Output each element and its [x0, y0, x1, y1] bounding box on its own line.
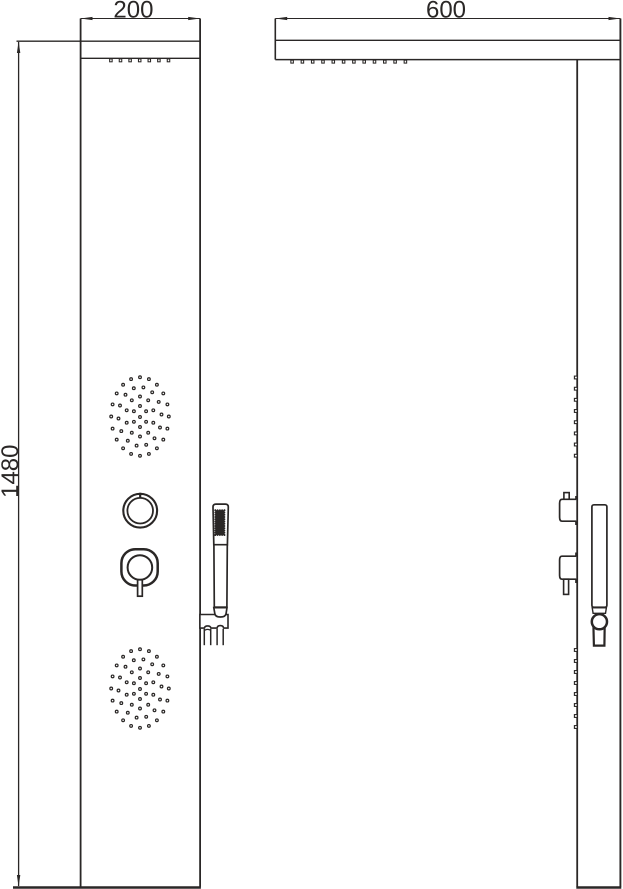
svg-text:600: 600 — [426, 0, 466, 24]
svg-text:200: 200 — [113, 0, 153, 24]
svg-text:1480: 1480 — [0, 445, 24, 498]
